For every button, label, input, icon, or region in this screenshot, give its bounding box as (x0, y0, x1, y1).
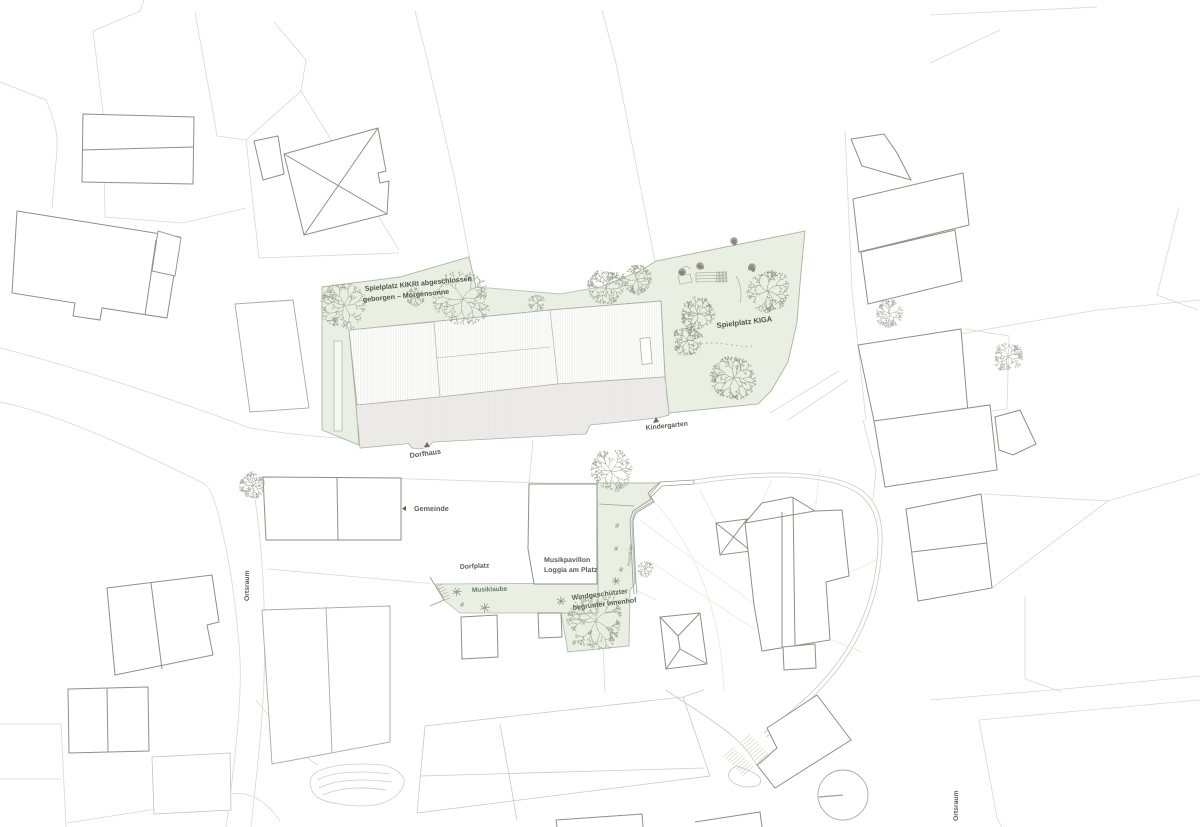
svg-text:Musiklaube: Musiklaube (472, 586, 508, 594)
svg-text:Gemeinde: Gemeinde (414, 504, 449, 513)
svg-text:Ortsraum: Ortsraum (953, 790, 960, 821)
svg-text:Musikpavillon: Musikpavillon (544, 556, 590, 564)
svg-text:Ortsraum: Ortsraum (244, 570, 251, 601)
svg-text:Loggia am Platz: Loggia am Platz (544, 566, 598, 574)
